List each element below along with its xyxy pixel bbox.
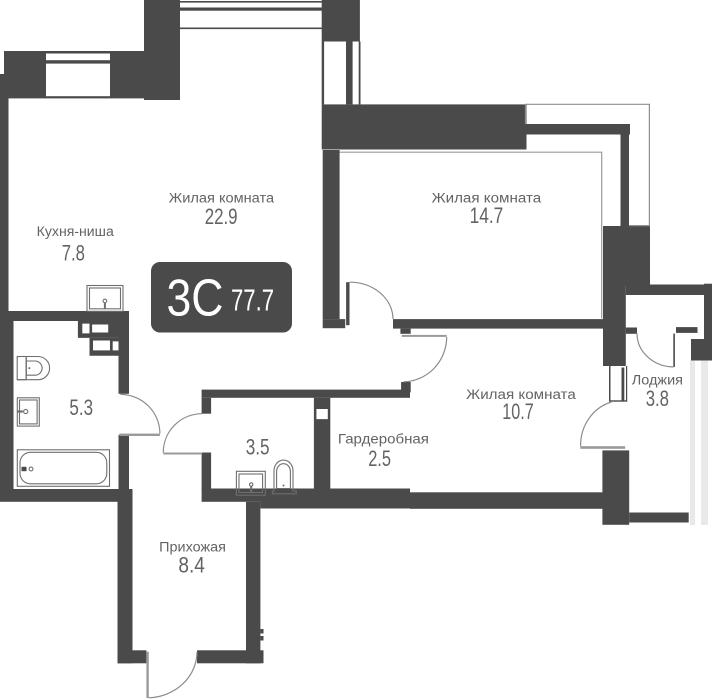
svg-text:77.7: 77.7	[231, 283, 274, 318]
svg-text:14.7: 14.7	[470, 203, 504, 228]
svg-text:3.8: 3.8	[646, 386, 669, 411]
svg-text:2.5: 2.5	[368, 446, 391, 471]
svg-text:Гардеробная: Гардеробная	[338, 432, 429, 447]
svg-text:Кухня-ниша: Кухня-ниша	[37, 224, 115, 239]
svg-text:22.9: 22.9	[205, 204, 238, 229]
svg-text:5.3: 5.3	[69, 395, 93, 420]
svg-text:3.5: 3.5	[246, 434, 270, 459]
svg-text:8.4: 8.4	[178, 553, 205, 578]
svg-text:3С: 3С	[167, 270, 224, 328]
svg-text:10.7: 10.7	[502, 399, 533, 424]
svg-text:7.8: 7.8	[62, 240, 85, 265]
